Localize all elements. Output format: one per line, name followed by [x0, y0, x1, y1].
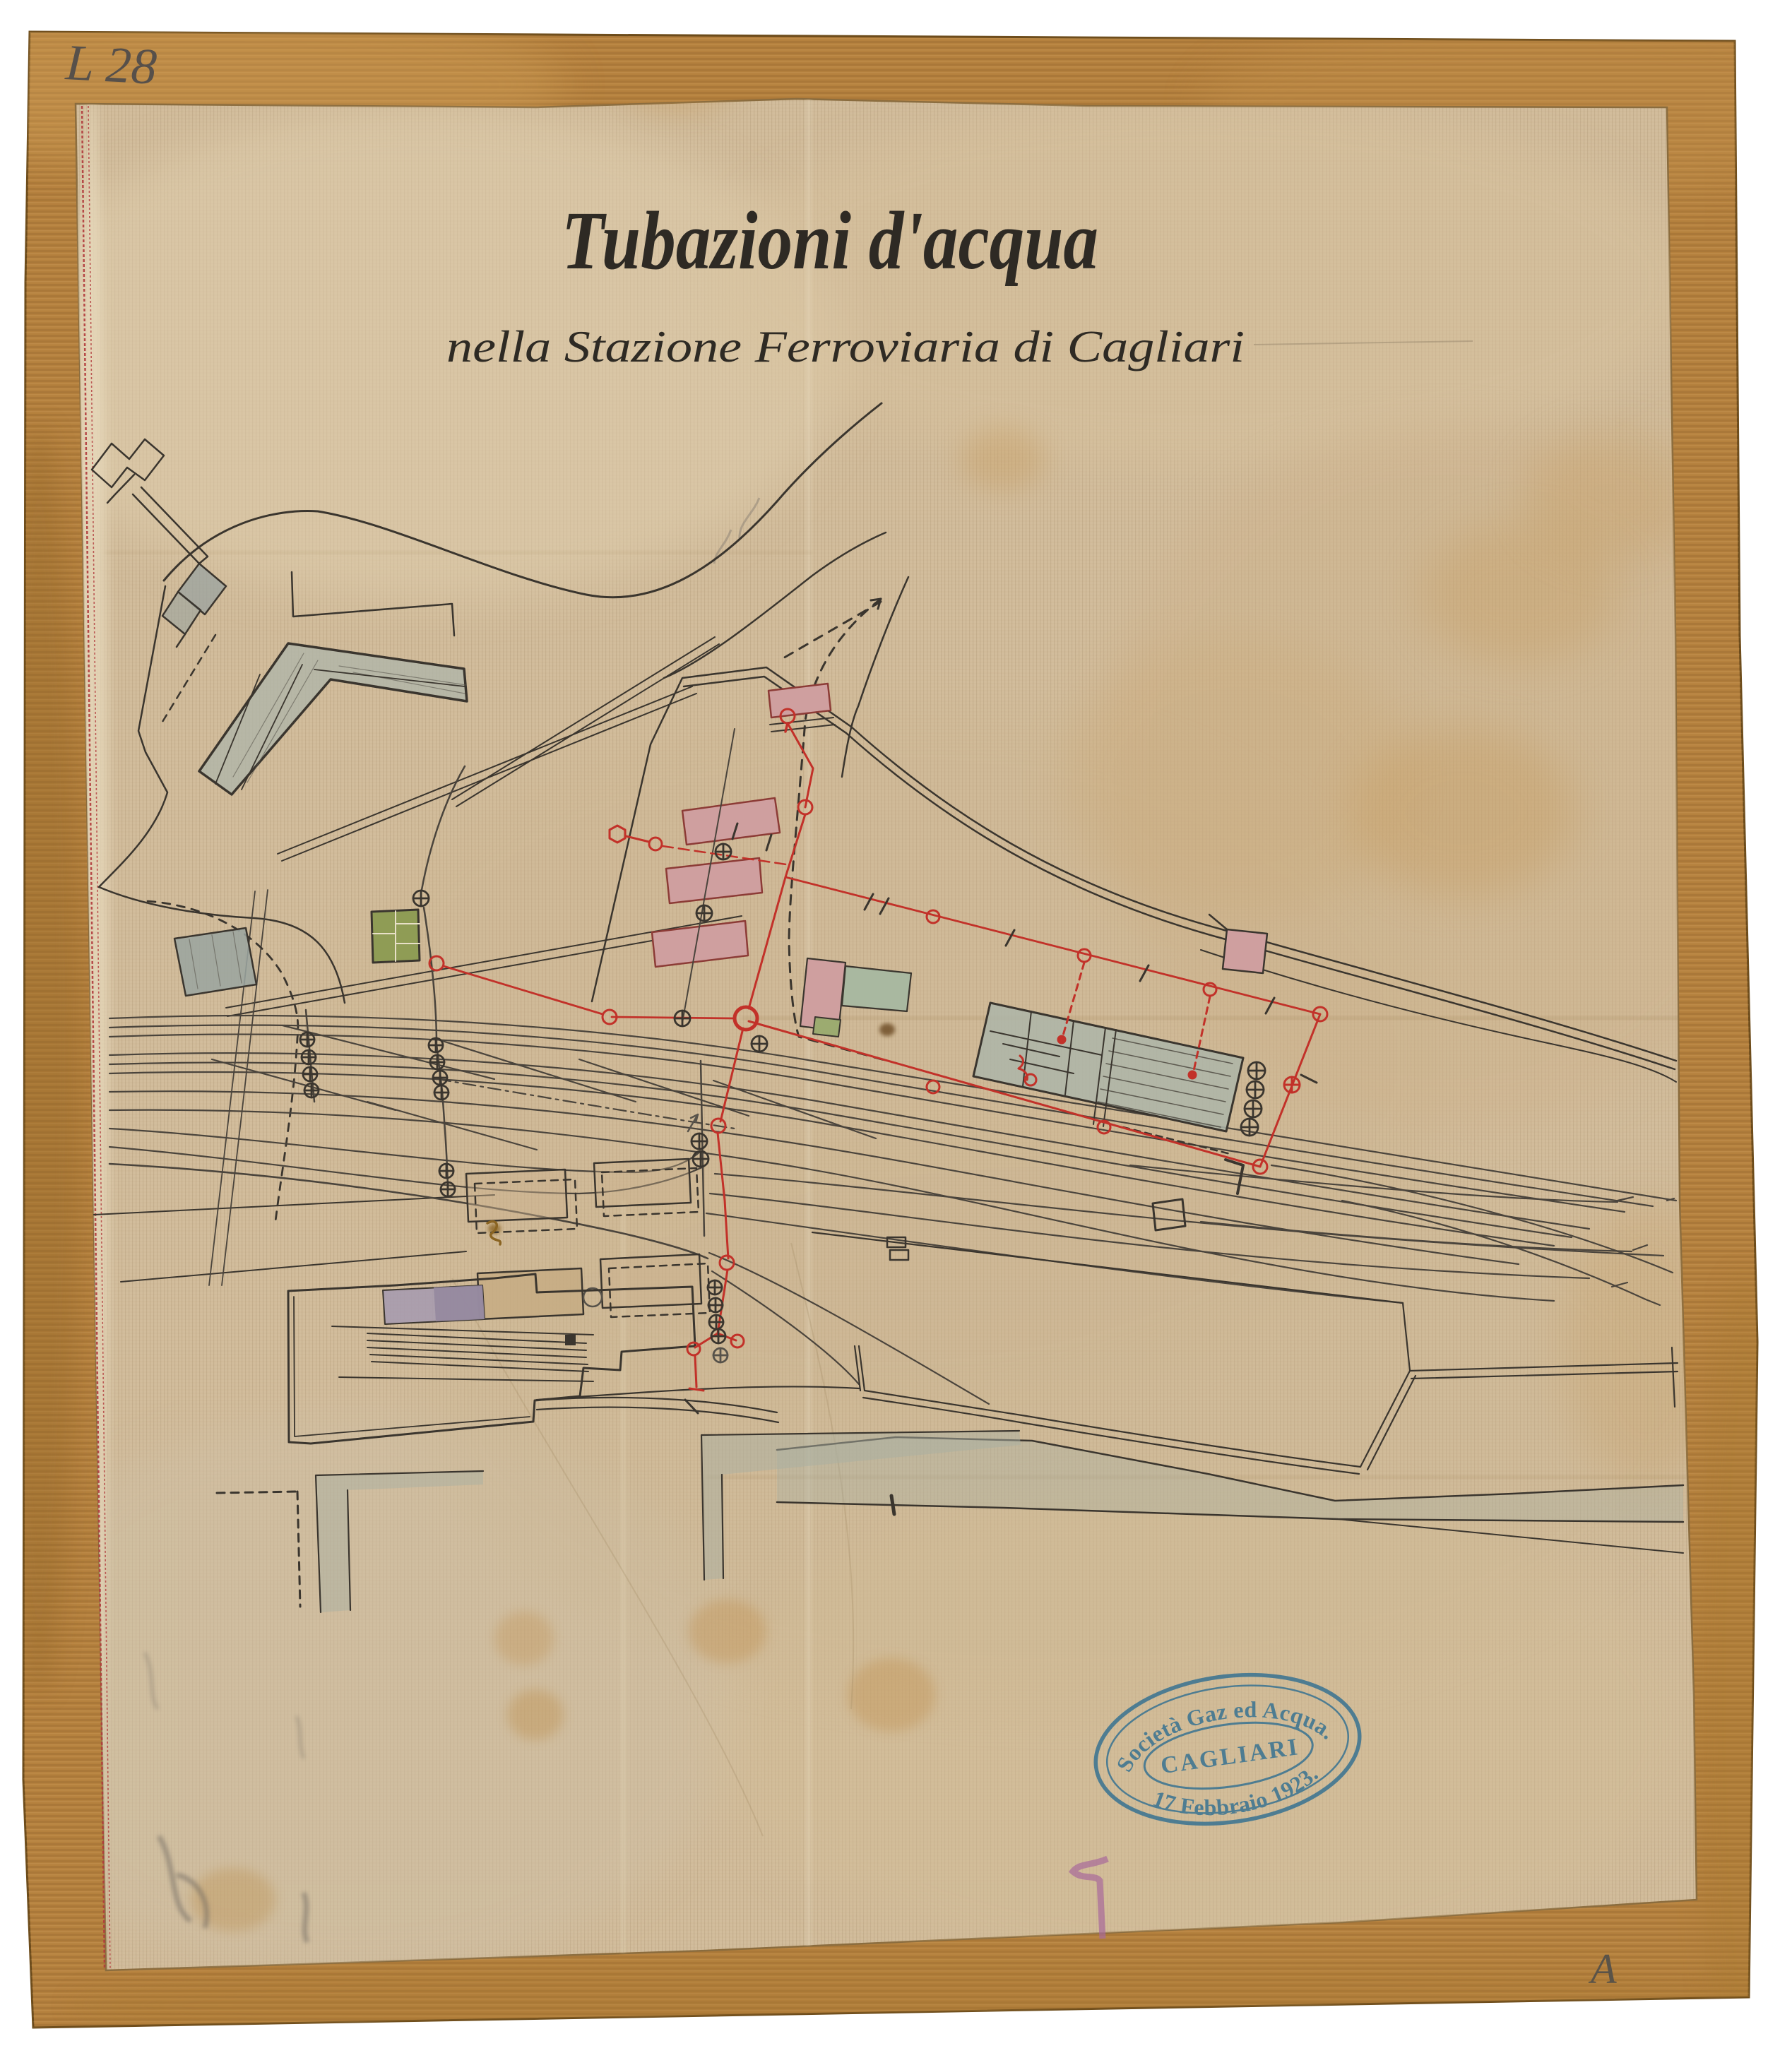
svg-text:nella Stazione Ferroviaria di: nella Stazione Ferroviaria di Cagliari — [446, 321, 1245, 371]
svg-text:L 28: L 28 — [64, 34, 158, 95]
svg-text:Tubazioni d'acqua: Tubazioni d'acqua — [562, 194, 1098, 287]
svg-text:A: A — [1588, 1946, 1617, 1992]
